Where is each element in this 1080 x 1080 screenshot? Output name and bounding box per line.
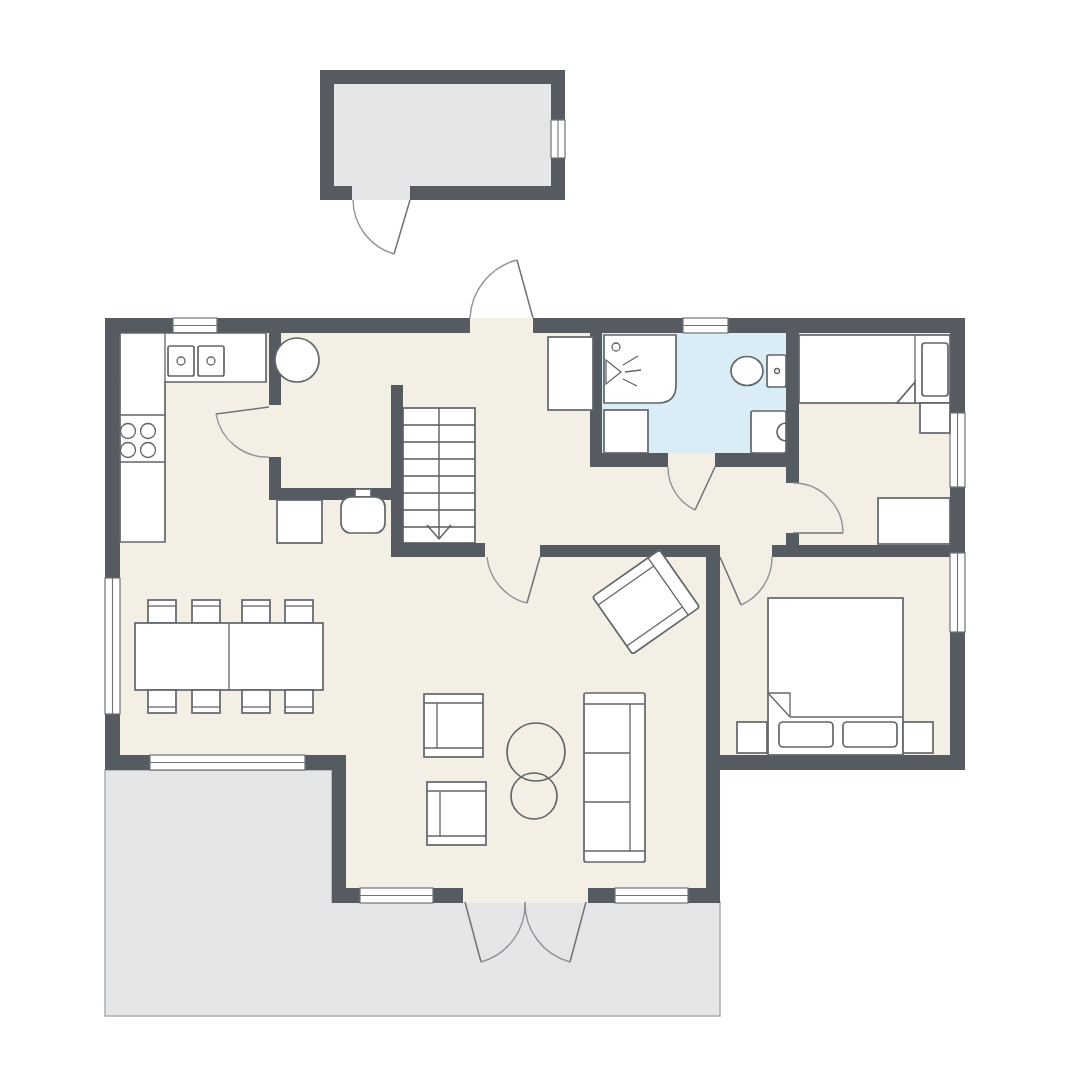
sofa — [584, 693, 645, 862]
wall-bedroom-upper-west-stub — [786, 533, 799, 557]
round-table — [275, 338, 319, 382]
nightstand-upper — [920, 403, 950, 433]
wardrobe — [548, 337, 593, 410]
dining-chair — [285, 690, 313, 713]
dining-chair — [192, 690, 220, 713]
wall-stairs-west — [391, 385, 403, 555]
shed-door-opening — [352, 186, 410, 200]
wood-stove — [341, 497, 385, 533]
shed-door-swing — [353, 200, 394, 254]
wall-living-bedroom-divider — [706, 545, 720, 903]
wall-hall-south-right — [540, 545, 706, 557]
shed-floor — [334, 84, 551, 186]
single-bed-pillow — [922, 343, 948, 396]
sink-basin-right — [198, 346, 224, 376]
dining-chair — [242, 600, 270, 623]
toilet-bowl — [731, 357, 763, 386]
shower — [604, 335, 676, 403]
desk — [878, 498, 950, 544]
wall-top — [105, 318, 965, 333]
shed — [320, 70, 565, 254]
wall-bathroom-south-left — [590, 453, 668, 467]
nightstand-left — [737, 722, 767, 753]
wall-bathroom-east — [786, 333, 799, 483]
double-bed-pillow-left — [779, 722, 833, 747]
dining-chair — [148, 600, 176, 623]
wood-stove-flue — [355, 489, 371, 497]
shed-door-leaf — [394, 200, 410, 254]
entry-door-opening — [470, 318, 533, 333]
dining-chair — [148, 690, 176, 713]
washing-machine — [604, 410, 648, 453]
wall-right — [950, 318, 965, 770]
hall-cabinet — [277, 500, 322, 543]
sink-basin-left — [168, 346, 194, 376]
wall-step — [332, 755, 346, 903]
floor-plan-page — [0, 0, 1080, 1080]
armchair-bottom — [427, 782, 486, 845]
wall-bedroom-bottom — [706, 755, 965, 770]
dining-chair — [242, 690, 270, 713]
toilet-tank — [767, 355, 786, 387]
entry-door-swing — [470, 260, 517, 318]
terrace-door-opening — [463, 888, 588, 903]
entry-door-leaf — [517, 260, 533, 318]
armchair-top — [424, 694, 483, 757]
dining-chair — [285, 600, 313, 623]
double-bed-pillow-right — [843, 722, 897, 747]
wall-hall-south-kitchen — [269, 488, 403, 500]
sofa-body — [584, 693, 645, 862]
floor-plan-drawing — [0, 0, 1080, 1080]
nightstand-right — [903, 722, 933, 753]
dining-chair — [192, 600, 220, 623]
wall-stairs-south — [391, 543, 485, 557]
staircase — [403, 408, 475, 543]
